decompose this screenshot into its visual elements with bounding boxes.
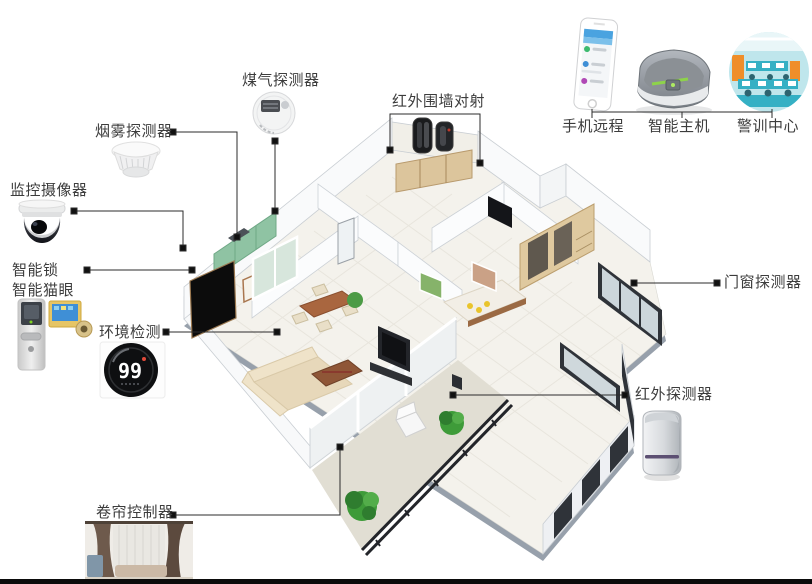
label-smart-peephole-line2: 智能猫眼 xyxy=(12,281,74,301)
label-smart-lock-line1: 智能锁 xyxy=(12,261,74,281)
label-env-monitor: 环境检测 xyxy=(99,323,161,343)
label-perimeter-beam: 红外围墙对射 xyxy=(392,92,485,112)
gas-detector-icon xyxy=(252,89,296,137)
label-smoke-detector: 烟雾探测器 xyxy=(95,122,173,142)
label-smart-lock: 智能锁 智能猫眼 xyxy=(12,261,74,301)
alarm-center-icon xyxy=(728,31,810,113)
bottom-border-bar xyxy=(0,579,812,584)
label-curtain-controller: 卷帘控制器 xyxy=(96,503,174,523)
label-smart-host: 智能主机 xyxy=(648,117,710,137)
environment-monitor-icon: 99 xyxy=(99,340,167,400)
label-camera: 监控摄像器 xyxy=(10,181,88,201)
smartphone-icon xyxy=(572,17,622,117)
smart-lock-peephole-icon xyxy=(13,291,95,375)
smoke-detector-icon xyxy=(110,139,162,181)
label-door-window-detector: 门窗探测器 xyxy=(724,273,802,293)
pir-detector-icon xyxy=(635,409,689,483)
svg-text:99: 99 xyxy=(118,359,142,383)
mirror-panel xyxy=(338,218,354,264)
smart-hub-icon xyxy=(626,42,722,118)
dome-camera-icon xyxy=(15,199,69,247)
label-gas-detector: 煤气探测器 xyxy=(242,71,320,91)
label-phone-remote: 手机远程 xyxy=(562,117,624,137)
perimeter-beam-icon xyxy=(411,116,459,156)
label-alarm-center: 警训中心 xyxy=(737,117,799,137)
curtain-controller-icon xyxy=(85,521,193,581)
smart-home-diagram: 99 xyxy=(0,0,812,584)
label-pir-detector: 红外探测器 xyxy=(635,385,713,405)
